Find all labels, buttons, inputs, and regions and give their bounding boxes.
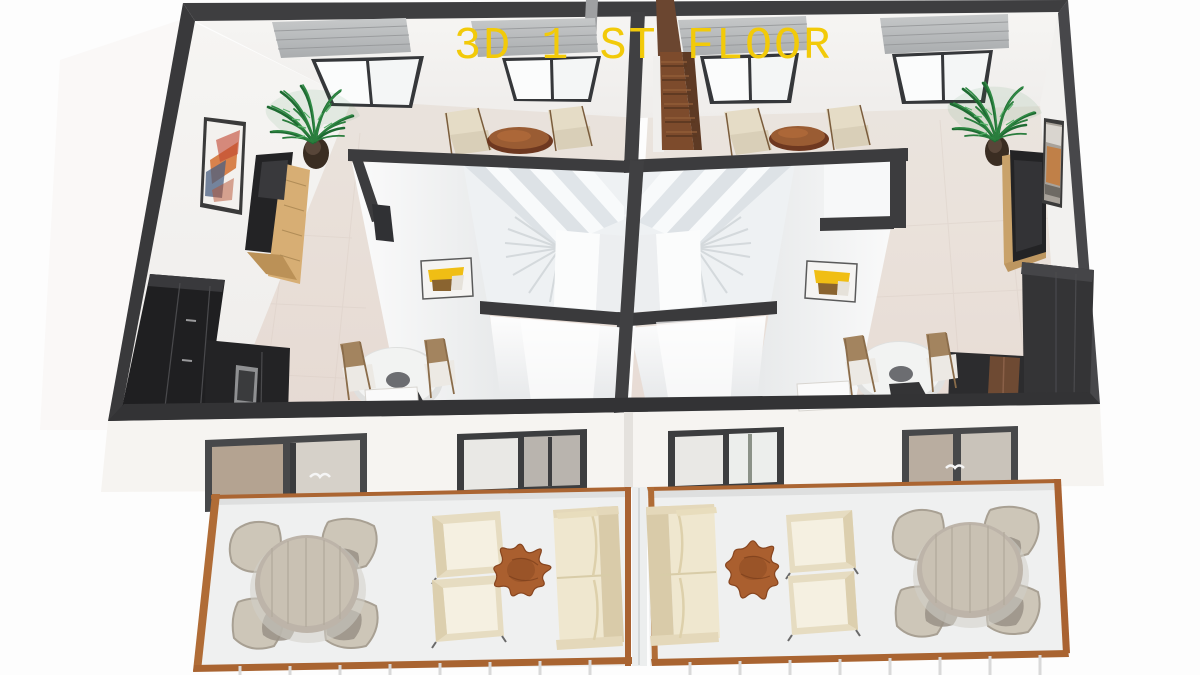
svg-text:3D 1 ST FLOOR: 3D 1 ST FLOOR [454, 21, 832, 72]
